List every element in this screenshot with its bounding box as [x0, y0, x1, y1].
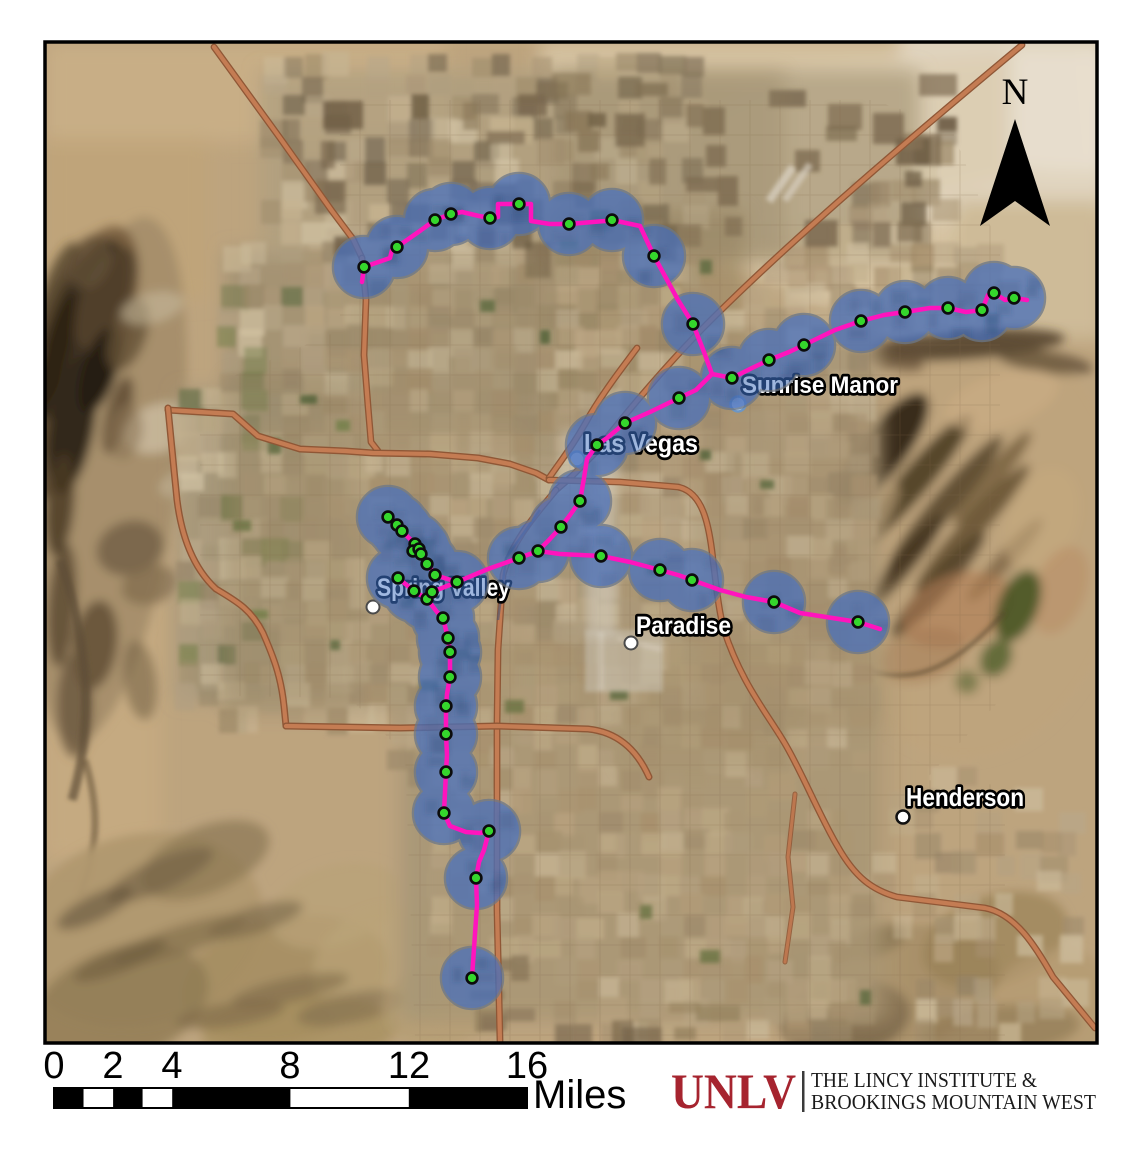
svg-text:4: 4 — [161, 1045, 182, 1087]
svg-text:8: 8 — [279, 1045, 300, 1087]
svg-text:N: N — [1002, 72, 1029, 113]
svg-text:Miles: Miles — [533, 1073, 626, 1117]
svg-text:Henderson: Henderson — [906, 782, 1024, 812]
svg-text:UNLV: UNLV — [671, 1063, 796, 1119]
svg-text:BROOKINGS MOUNTAIN WEST: BROOKINGS MOUNTAIN WEST — [811, 1090, 1096, 1114]
svg-text:Paradise: Paradise — [636, 612, 731, 640]
svg-text:THE LINCY INSTITUTE &: THE LINCY INSTITUTE & — [811, 1068, 1037, 1092]
svg-text:0: 0 — [43, 1045, 64, 1087]
svg-text:12: 12 — [388, 1045, 430, 1087]
svg-text:2: 2 — [102, 1045, 123, 1087]
